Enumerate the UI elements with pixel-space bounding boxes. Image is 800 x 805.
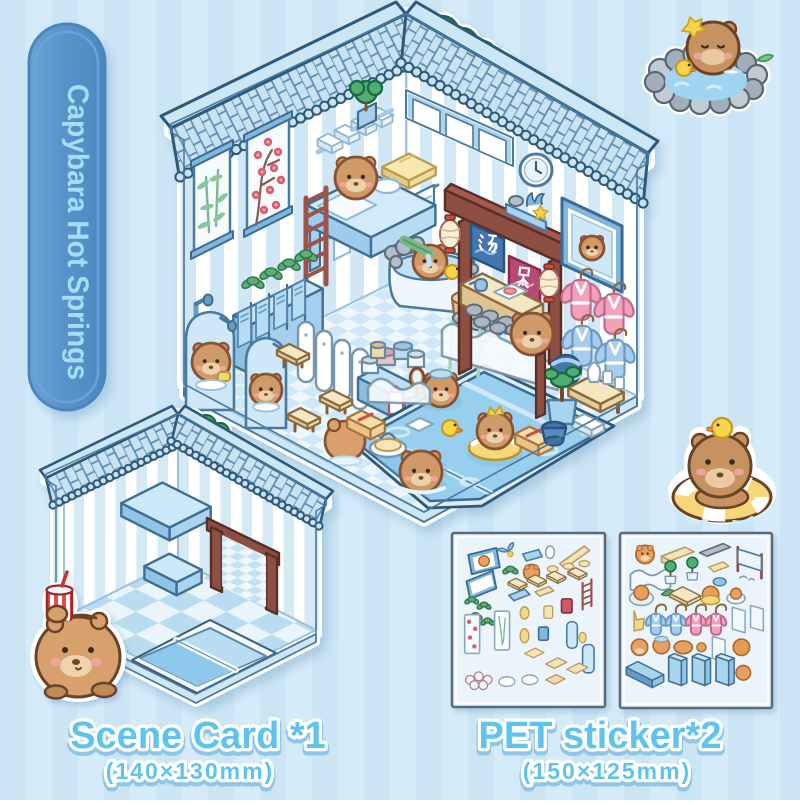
svg-text:(150×125mm): (150×125mm) (523, 758, 691, 784)
svg-text:PET sticker*2: PET sticker*2 (479, 715, 722, 757)
svg-text:(140×130mm): (140×130mm) (106, 758, 274, 784)
svg-text:Scene Card *1: Scene Card *1 (70, 715, 326, 757)
svg-text:Capybara Hot Springs: Capybara Hot Springs (61, 84, 94, 380)
